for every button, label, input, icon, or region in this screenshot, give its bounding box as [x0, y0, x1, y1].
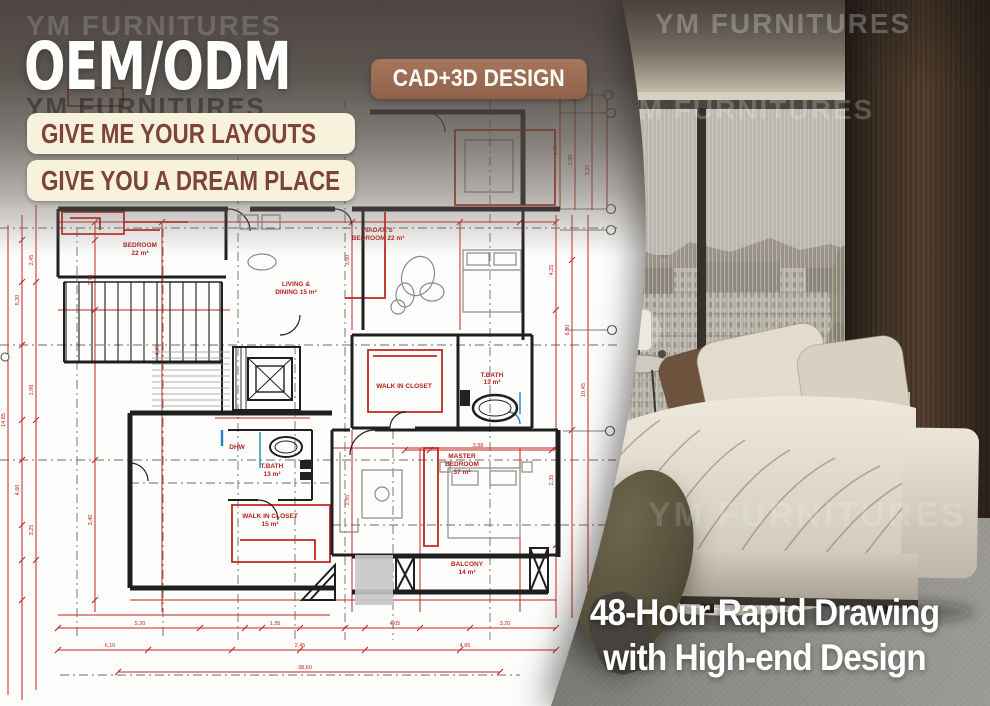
brand-watermark-right-2: YM FURNITURES	[618, 94, 874, 126]
tagline: 48-Hour Rapid Drawing with High-end Desi…	[567, 590, 962, 680]
interior-photo-panel: YM FURNITURES YM FURNITURES YM FURNITURE…	[0, 0, 990, 706]
photo-wrap: YM FURNITURES YM FURNITURES YM FURNITURE…	[0, 0, 990, 706]
tagline-line1: 48-Hour Rapid Drawing	[567, 590, 962, 635]
promo-banner: NADAA'SBEDROOM 22 m²BEDROOM22 m²LIVING &…	[0, 0, 990, 706]
brand-watermark-top-right: YM FURNITURES	[655, 8, 911, 40]
brand-watermark-sofa: YM FURNITURES	[648, 496, 967, 535]
tagline-line2: with High-end Design	[567, 635, 962, 680]
